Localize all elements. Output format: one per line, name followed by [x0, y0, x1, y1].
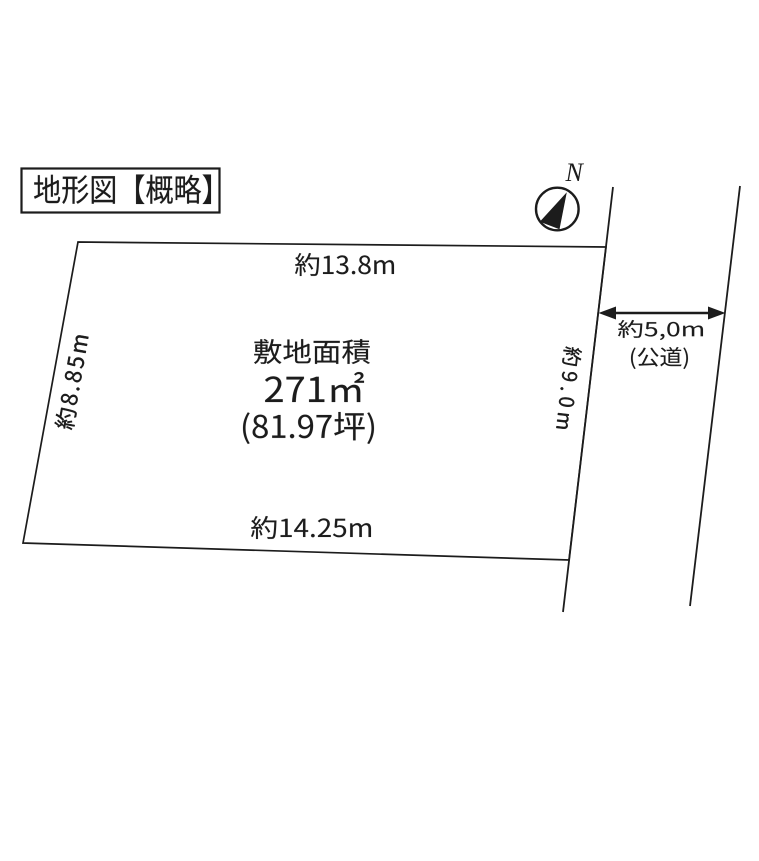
- svg-text:N: N: [565, 158, 585, 187]
